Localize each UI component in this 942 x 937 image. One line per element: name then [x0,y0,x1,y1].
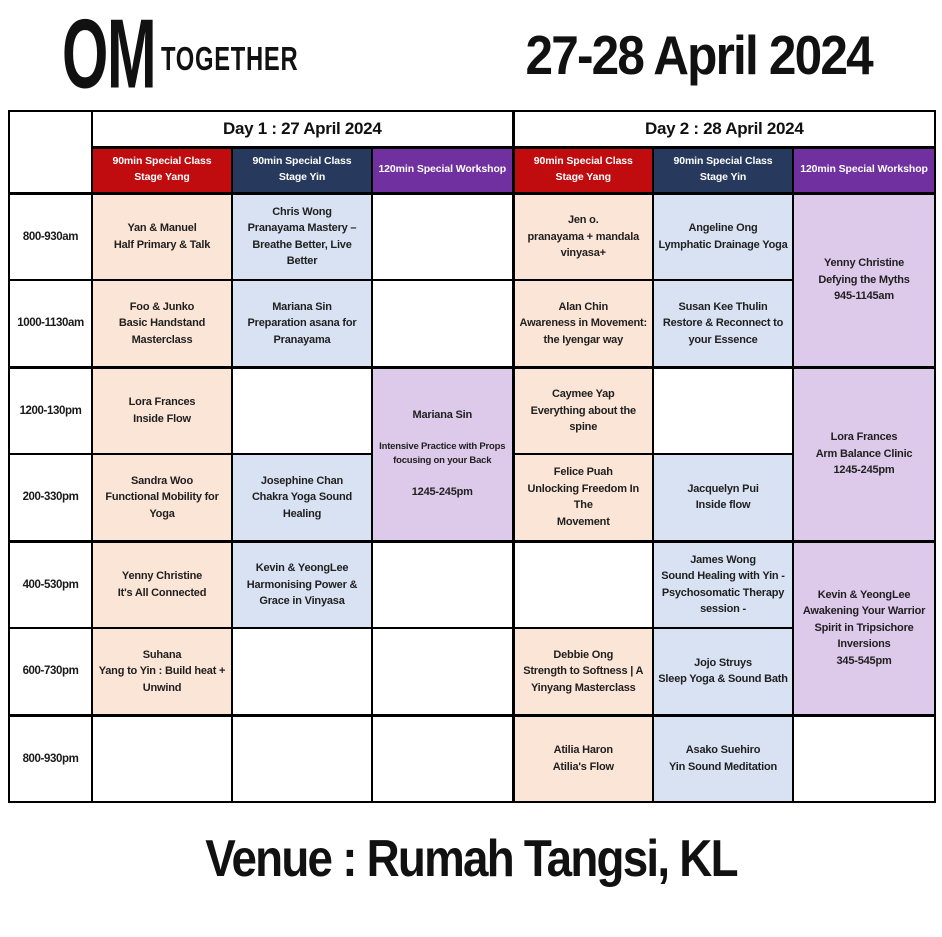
cell-day1-workshop-rows34: Mariana Sin Intensive Practice with Prop… [372,367,513,541]
time-column-header [9,111,92,193]
cell-day1-yang-1: Foo & Junko Basic Handstand Masterclass [92,280,232,367]
time-slot: 200-330pm [9,454,92,541]
workshop-detail: Intensive Practice with Props focusing o… [377,440,508,468]
cell-day2-yin-2-empty [653,367,793,454]
day1-workshop-column-header: 120min Special Workshop [372,147,513,193]
time-slot: 800-930am [9,193,92,280]
class-type-header-row: 90min Special Class Stage Yang 90min Spe… [9,147,935,193]
cell-day1-yang-3: Sandra Woo Functional Mobility for Yoga [92,454,232,541]
cell-day1-yin-1: Mariana Sin Preparation asana for Pranay… [232,280,372,367]
logo-om-text: OM [62,6,155,104]
time-slot: 1000-1130am [9,280,92,367]
cell-day1-yin-4: Kevin & YeongLee Harmonising Power & Gra… [232,541,372,628]
day1-yang-column-header: 90min Special Class Stage Yang [92,147,232,193]
cell-day2-yin-0: Angeline Ong Lymphatic Drainage Yoga [653,193,793,280]
cell-day1-workshop-0-empty [372,193,513,280]
cell-day2-workshop-6-empty [793,715,935,802]
cell-day2-yin-3: Jacquelyn Pui Inside flow [653,454,793,541]
time-slot: 800-930pm [9,715,92,802]
page-header: OM TOGETHER 27-28 April 2024 [0,0,942,110]
schedule-row-800-930pm: 800-930pm Atilia Haron Atilia's Flow Asa… [9,715,935,802]
cell-day2-yang-5: Debbie Ong Strength to Softness | A Yiny… [513,628,653,715]
schedule-row-800-930am: 800-930am Yan & Manuel Half Primary & Ta… [9,193,935,280]
cell-day1-yang-5: Suhana Yang to Yin : Build heat + Unwind [92,628,232,715]
schedule-table: Day 1 : 27 April 2024 Day 2 : 28 April 2… [8,110,936,803]
logo-together-text: TOGETHER [161,42,298,75]
cell-day1-yin-6-empty [232,715,372,802]
cell-day2-yang-6: Atilia Haron Atilia's Flow [513,715,653,802]
cell-day2-workshop-rows12: Yenny Christine Defying the Myths 945-11… [793,193,935,367]
event-dates-title: 27-28 April 2024 [526,23,872,87]
schedule-row-1200-130pm: 1200-130pm Lora Frances Inside Flow Mari… [9,367,935,454]
cell-day1-yin-5-empty [232,628,372,715]
day2-header: Day 2 : 28 April 2024 [513,111,935,147]
venue-text: Venue : Rumah Tangsi, KL [205,829,737,889]
cell-day2-yang-3: Felice Puah Unlocking Freedom In The Mov… [513,454,653,541]
cell-day2-yang-1: Alan Chin Awareness in Movement: the Iye… [513,280,653,367]
day2-workshop-column-header: 120min Special Workshop [793,147,935,193]
cell-day2-workshop-rows34: Lora Frances Arm Balance Clinic 1245-245… [793,367,935,541]
cell-day1-yin-0: Chris Wong Pranayama Mastery – Breathe B… [232,193,372,280]
om-together-logo: OM TOGETHER [62,7,351,103]
cell-day1-yang-2: Lora Frances Inside Flow [92,367,232,454]
cell-day1-workshop-5-empty [372,628,513,715]
cell-day1-yang-4: Yenny Christine It's All Connected [92,541,232,628]
time-slot: 600-730pm [9,628,92,715]
workshop-time: 1245-245pm [377,484,508,501]
cell-day1-workshop-1-empty [372,280,513,367]
cell-day2-yang-2: Caymee Yap Everything about the spine [513,367,653,454]
day1-header: Day 1 : 27 April 2024 [92,111,513,147]
cell-day2-yin-6: Asako Suehiro Yin Sound Meditation [653,715,793,802]
schedule-row-400-530pm: 400-530pm Yenny Christine It's All Conne… [9,541,935,628]
cell-day1-yang-6-empty [92,715,232,802]
time-slot: 1200-130pm [9,367,92,454]
cell-day2-yang-4-empty [513,541,653,628]
day1-yin-column-header: 90min Special Class Stage Yin [232,147,372,193]
day2-yang-column-header: 90min Special Class Stage Yang [513,147,653,193]
cell-day1-workshop-4-empty [372,541,513,628]
cell-day2-yin-5: Jojo Struys Sleep Yoga & Sound Bath [653,628,793,715]
cell-day2-yang-0: Jen o. pranayama + mandala vinyasa+ [513,193,653,280]
cell-day1-yin-2-empty [232,367,372,454]
cell-day2-workshop-rows56: Kevin & YeongLee Awakening Your Warrior … [793,541,935,715]
cell-day2-yin-4: James Wong Sound Healing with Yin - Psyc… [653,541,793,628]
cell-day1-yang-0: Yan & Manuel Half Primary & Talk [92,193,232,280]
workshop-teacher: Mariana Sin [377,407,508,424]
time-slot: 400-530pm [9,541,92,628]
cell-day1-yin-3: Josephine Chan Chakra Yoga Sound Healing [232,454,372,541]
cell-day2-yin-1: Susan Kee Thulin Restore & Reconnect to … [653,280,793,367]
day2-yin-column-header: 90min Special Class Stage Yin [653,147,793,193]
day-header-row: Day 1 : 27 April 2024 Day 2 : 28 April 2… [9,111,935,147]
venue-footer: Venue : Rumah Tangsi, KL [0,829,942,889]
cell-day1-workshop-6-empty [372,715,513,802]
